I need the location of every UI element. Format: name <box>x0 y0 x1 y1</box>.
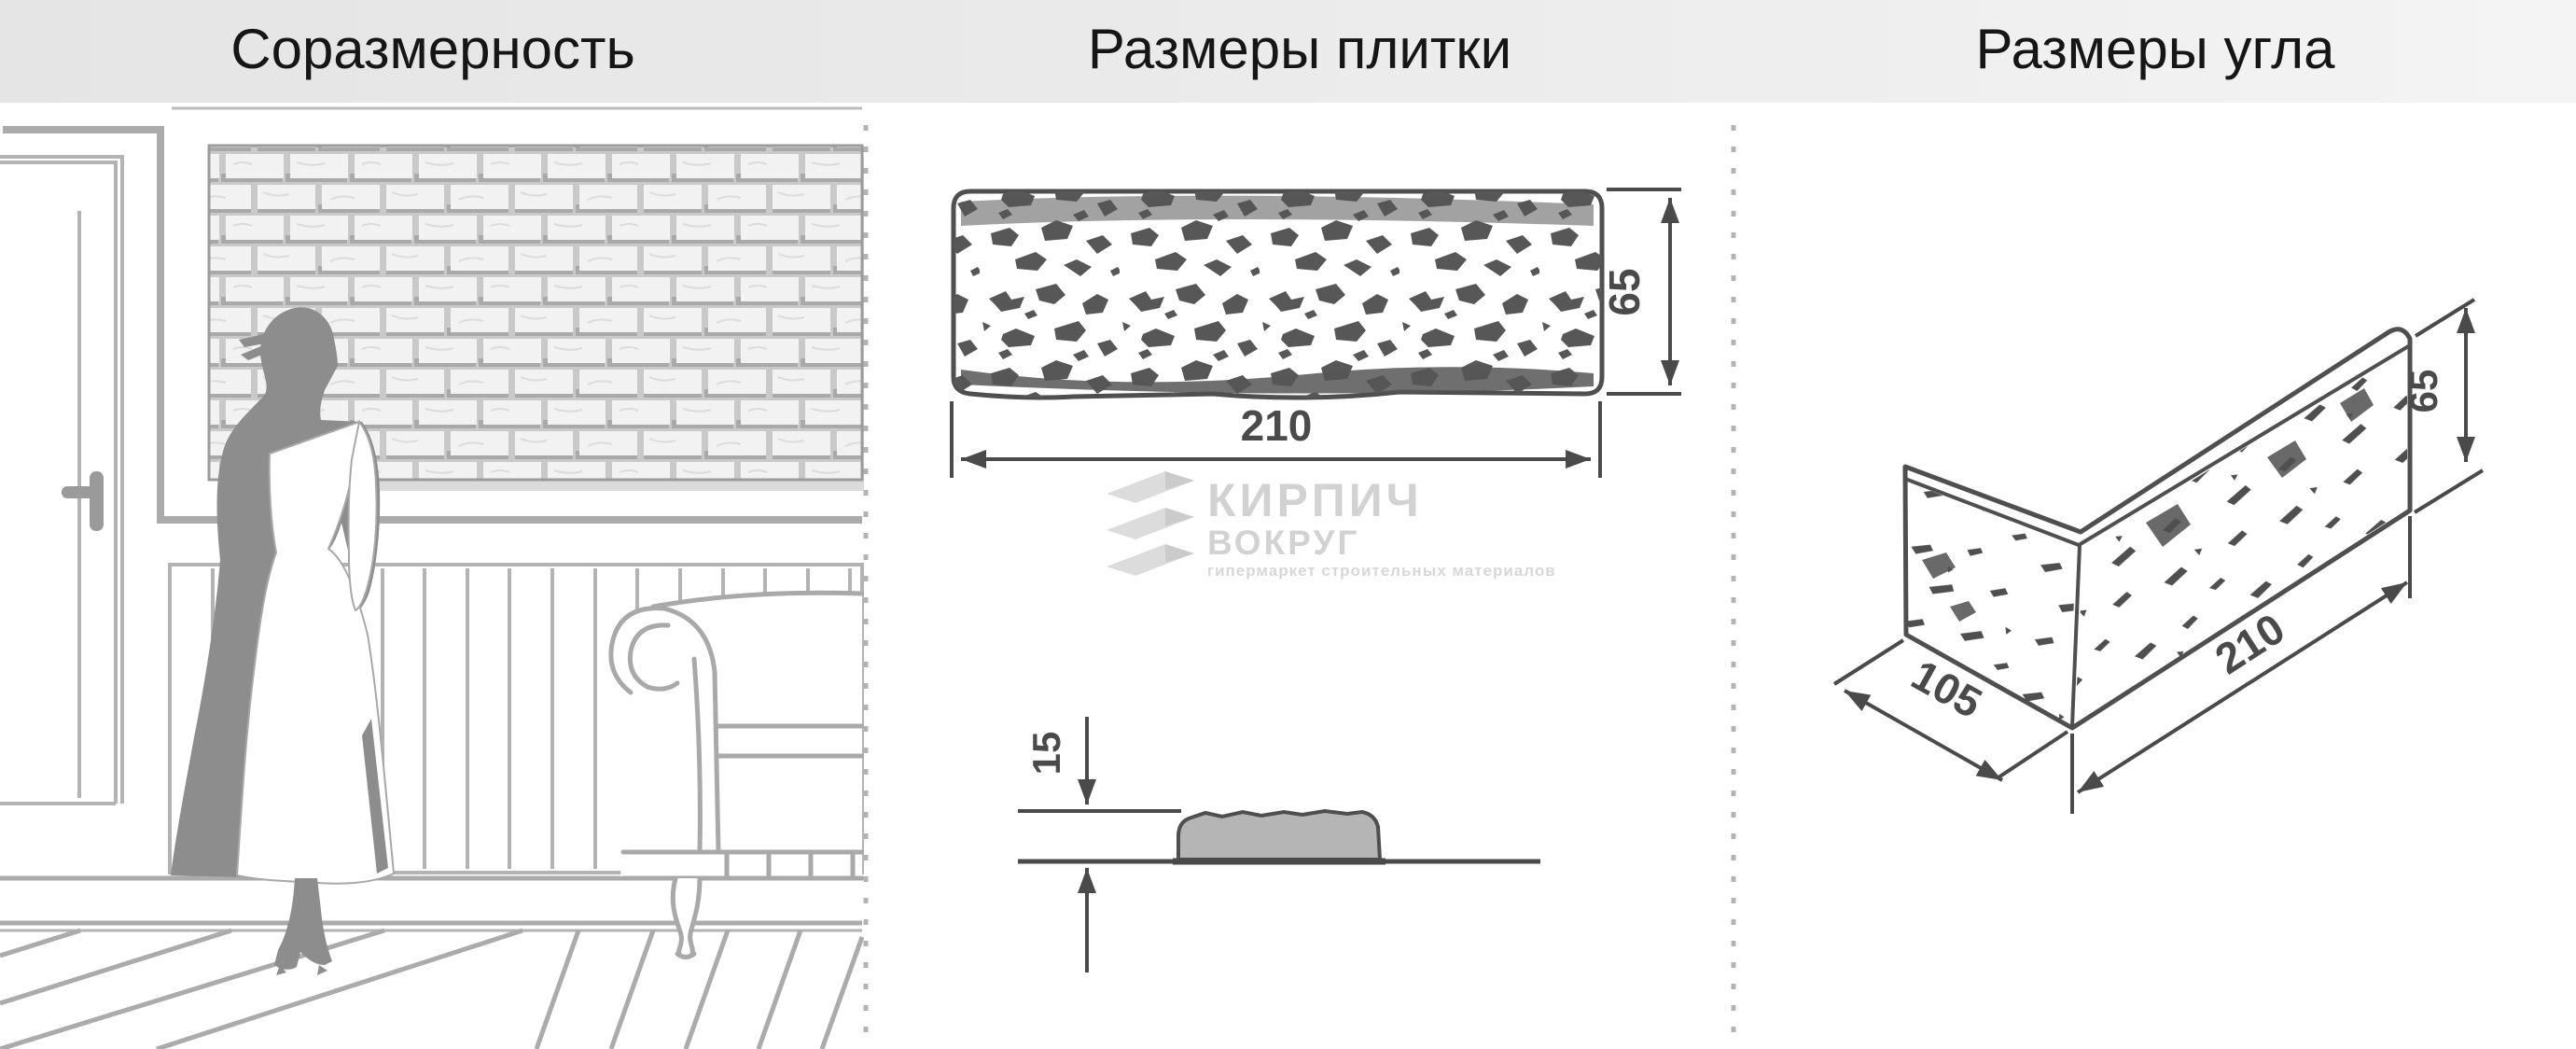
sofa-body-fill <box>608 592 862 878</box>
dim-label-tile-width: 210 <box>1241 401 1313 450</box>
door-handle-lever <box>62 486 95 498</box>
scene-proportion-illustration <box>0 108 873 1049</box>
dim-label-tile-height: 65 <box>1600 268 1649 315</box>
watermark-brand-line2: ВОКРУГ <box>1207 524 1359 562</box>
door-handle-icon <box>90 471 104 531</box>
legs-and-heels <box>274 878 332 975</box>
dim-label-corner-height: 65 <box>2402 370 2445 413</box>
floor-illustration <box>0 930 862 1049</box>
sofa <box>608 592 862 958</box>
tile-profile <box>1178 811 1380 860</box>
tile-front-view: 210 65 <box>952 189 1681 478</box>
diagram-canvas: 210 65 15 <box>0 0 2576 1049</box>
dim-label-thickness: 15 <box>1024 732 1068 776</box>
door-frame-outer <box>0 157 122 804</box>
sofa-leg-foot <box>677 954 694 958</box>
door <box>0 157 122 804</box>
watermark-tagline: гипермаркет строительных материалов <box>1207 562 1556 580</box>
page: Соразмерность Размеры плитки Размеры угл… <box>0 0 2576 1049</box>
floorboard-lines <box>0 930 862 1049</box>
brick-ribbons-icon <box>1107 471 1194 576</box>
dress-sleeve <box>349 422 377 610</box>
corner-tile-view: 65 210 105 <box>1834 300 2483 814</box>
watermark-brand-line1: КИРПИЧ <box>1207 474 1423 526</box>
watermark-logo: КИРПИЧ ВОКРУГ гипермаркет строительных м… <box>1107 471 1556 580</box>
tile-side-view: 15 <box>1018 717 1540 972</box>
